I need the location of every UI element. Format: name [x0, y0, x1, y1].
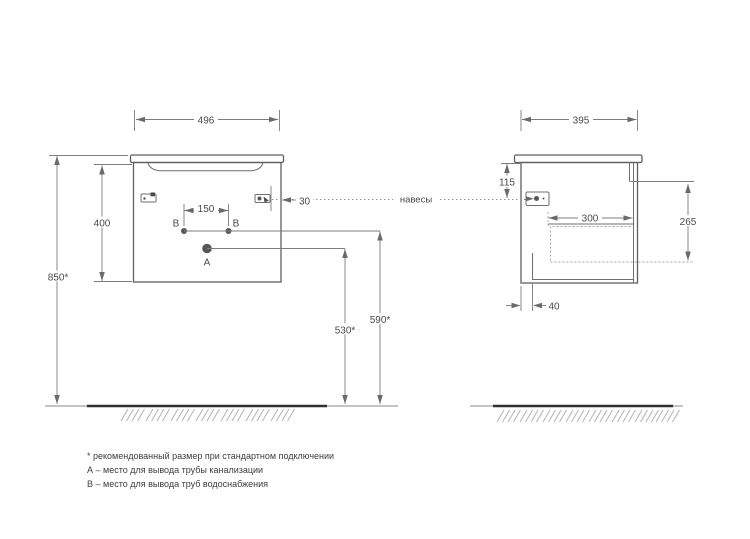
front-hanger-right — [255, 195, 270, 203]
side-dimensions — [501, 110, 694, 311]
drawer-front-profile — [533, 253, 634, 280]
label-a-height: 530* — [335, 326, 356, 337]
footnote-asterisk: * рекомендованный размер при стандартном… — [87, 449, 334, 463]
label-side-depth: 395 — [573, 116, 590, 127]
drawer-inner-dashed — [551, 227, 631, 262]
front-dimensions — [49, 110, 383, 404]
side-countertop — [515, 155, 643, 163]
label-inner-height: 265 — [680, 217, 697, 228]
label-hanger-offset: 30 — [299, 197, 311, 208]
hanger-leader-arrow — [526, 196, 534, 201]
floor-hatch-front — [121, 409, 295, 421]
dim-hanger-offset — [271, 186, 296, 211]
label-b-height: 590* — [370, 315, 391, 326]
label-front-width: 496 — [198, 116, 215, 127]
front-countertop — [131, 155, 284, 163]
label-drawer-depth: 300 — [582, 214, 599, 225]
front-hanger-left — [141, 193, 156, 203]
side-view — [515, 155, 695, 283]
label-hole-b-left: B — [173, 219, 180, 230]
front-basin-edge — [148, 163, 263, 171]
floor-front — [45, 406, 398, 421]
label-front-total-height: 850* — [48, 273, 69, 284]
label-front-body-height: 400 — [94, 219, 111, 230]
footnotes: * рекомендованный размер при стандартном… — [87, 449, 334, 491]
label-hanger-drop: 115 — [499, 178, 515, 189]
technical-drawing-page: 496 850* 400 150 30 навесы 530* 590* 395… — [0, 0, 750, 539]
label-hole-b-right: B — [233, 219, 240, 230]
label-hole-spacing: 150 — [198, 204, 215, 215]
floor-side — [470, 406, 683, 422]
footnote-a: А – место для вывода трубы канализации — [87, 463, 334, 477]
label-hangers: навесы — [400, 195, 433, 206]
label-hole-a: A — [204, 258, 211, 269]
floor-hatch-side — [497, 410, 680, 422]
dim-bottom-offset — [506, 283, 546, 311]
footnote-b: В – место для вывода труб водоснабжения — [87, 477, 334, 491]
label-bottom-offset: 40 — [548, 302, 560, 313]
dimension-labels: 496 850* 400 150 30 навесы 530* 590* 395… — [44, 114, 700, 337]
